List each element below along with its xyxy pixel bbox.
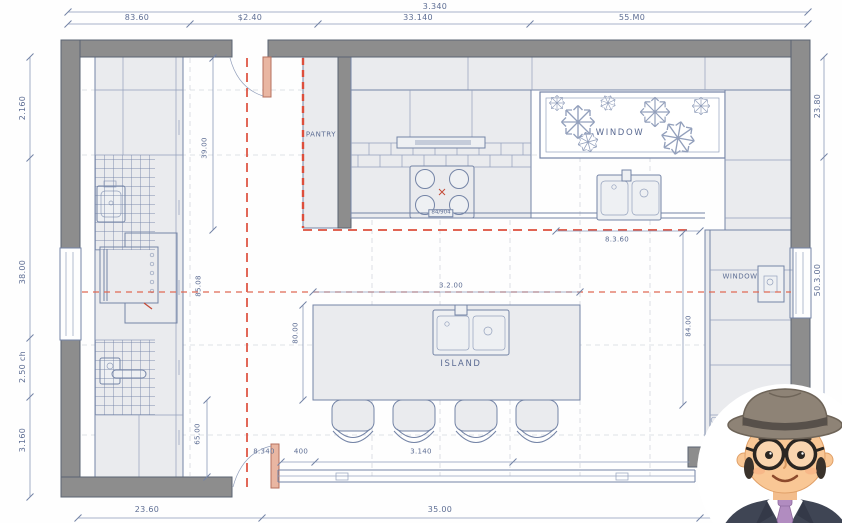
top-window-label: WINDOW bbox=[596, 129, 645, 138]
tiled-counter-upper bbox=[95, 155, 155, 250]
dim-mid-left: 85.08 bbox=[196, 275, 203, 297]
kitchen-island bbox=[313, 305, 580, 400]
dim-right-1: 23.80 bbox=[814, 94, 822, 118]
plant-icon bbox=[549, 95, 564, 110]
island-label: ISLAND bbox=[440, 360, 481, 369]
island-sink bbox=[433, 305, 509, 355]
dim-top-total: 3.340 bbox=[423, 3, 447, 11]
dim-top-seg1: 83.60 bbox=[125, 14, 149, 22]
dim-top-seg4: 55.M0 bbox=[619, 14, 645, 22]
range-hood bbox=[397, 137, 485, 148]
dim-sink-run: 8.3.60 bbox=[605, 237, 629, 244]
bottom-glazing bbox=[278, 470, 695, 482]
bottom-wall-left bbox=[61, 477, 232, 497]
bar-stools bbox=[332, 400, 558, 443]
stool bbox=[332, 400, 374, 443]
dim-right-run: 84.00 bbox=[686, 315, 693, 337]
dim-bottom-1: 23.60 bbox=[135, 506, 159, 514]
top-door bbox=[230, 57, 271, 97]
dim-small-bottom: 400 bbox=[294, 449, 308, 456]
dim-left-3: 2.50 ch bbox=[19, 351, 27, 383]
kitchen-floor-plan: 3.340 83.60 $2.40 33.140 55.M0 2.160 38.… bbox=[0, 0, 842, 523]
dim-door-bottom: 8.340 bbox=[253, 449, 275, 456]
interior-wall-stub bbox=[338, 57, 351, 228]
stool bbox=[516, 400, 558, 443]
right-wall-upper bbox=[791, 40, 810, 248]
pantry-label: PANTRY bbox=[306, 132, 336, 139]
top-wall-right bbox=[268, 40, 810, 57]
dim-bottom-2: 35.00 bbox=[428, 506, 452, 514]
top-window bbox=[540, 92, 725, 158]
cooktop-label: 84/904 bbox=[428, 209, 453, 217]
plant-icon bbox=[692, 97, 710, 115]
dim-lower-left: 65.00 bbox=[195, 423, 202, 445]
appliance-box bbox=[758, 266, 784, 302]
left-wall-lower bbox=[61, 340, 80, 497]
pantry-cabinet bbox=[303, 57, 351, 228]
avatar bbox=[697, 384, 842, 523]
dim-top-seg2: $2.40 bbox=[238, 14, 262, 22]
kitchen-sink bbox=[597, 170, 661, 220]
stool bbox=[393, 400, 435, 443]
dim-stool-run: 3.140 bbox=[410, 449, 432, 456]
left-wall-window bbox=[60, 248, 81, 340]
dim-right-2: 50.3.00 bbox=[814, 264, 822, 297]
fedora-hat-icon bbox=[728, 389, 842, 439]
left-wall-upper bbox=[61, 40, 80, 248]
tiled-counter-lower bbox=[95, 340, 155, 415]
dim-left-2: 38.00 bbox=[19, 260, 27, 284]
burner bbox=[450, 170, 469, 189]
top-wall-left bbox=[78, 40, 232, 57]
dim-left-1: 2.160 bbox=[19, 96, 27, 120]
burner bbox=[416, 170, 435, 189]
plant-icon bbox=[562, 106, 595, 139]
stool bbox=[455, 400, 497, 443]
right-window-label: WINDOW bbox=[722, 274, 757, 281]
dim-left-4: 3.160 bbox=[19, 428, 27, 452]
dim-pantry-depth: 39.00 bbox=[202, 137, 209, 159]
dim-island-width: 3.2.00 bbox=[439, 283, 463, 290]
dim-top-seg3: 33.140 bbox=[403, 14, 433, 22]
dim-island-depth: 80.00 bbox=[293, 322, 300, 344]
doors bbox=[230, 57, 279, 488]
